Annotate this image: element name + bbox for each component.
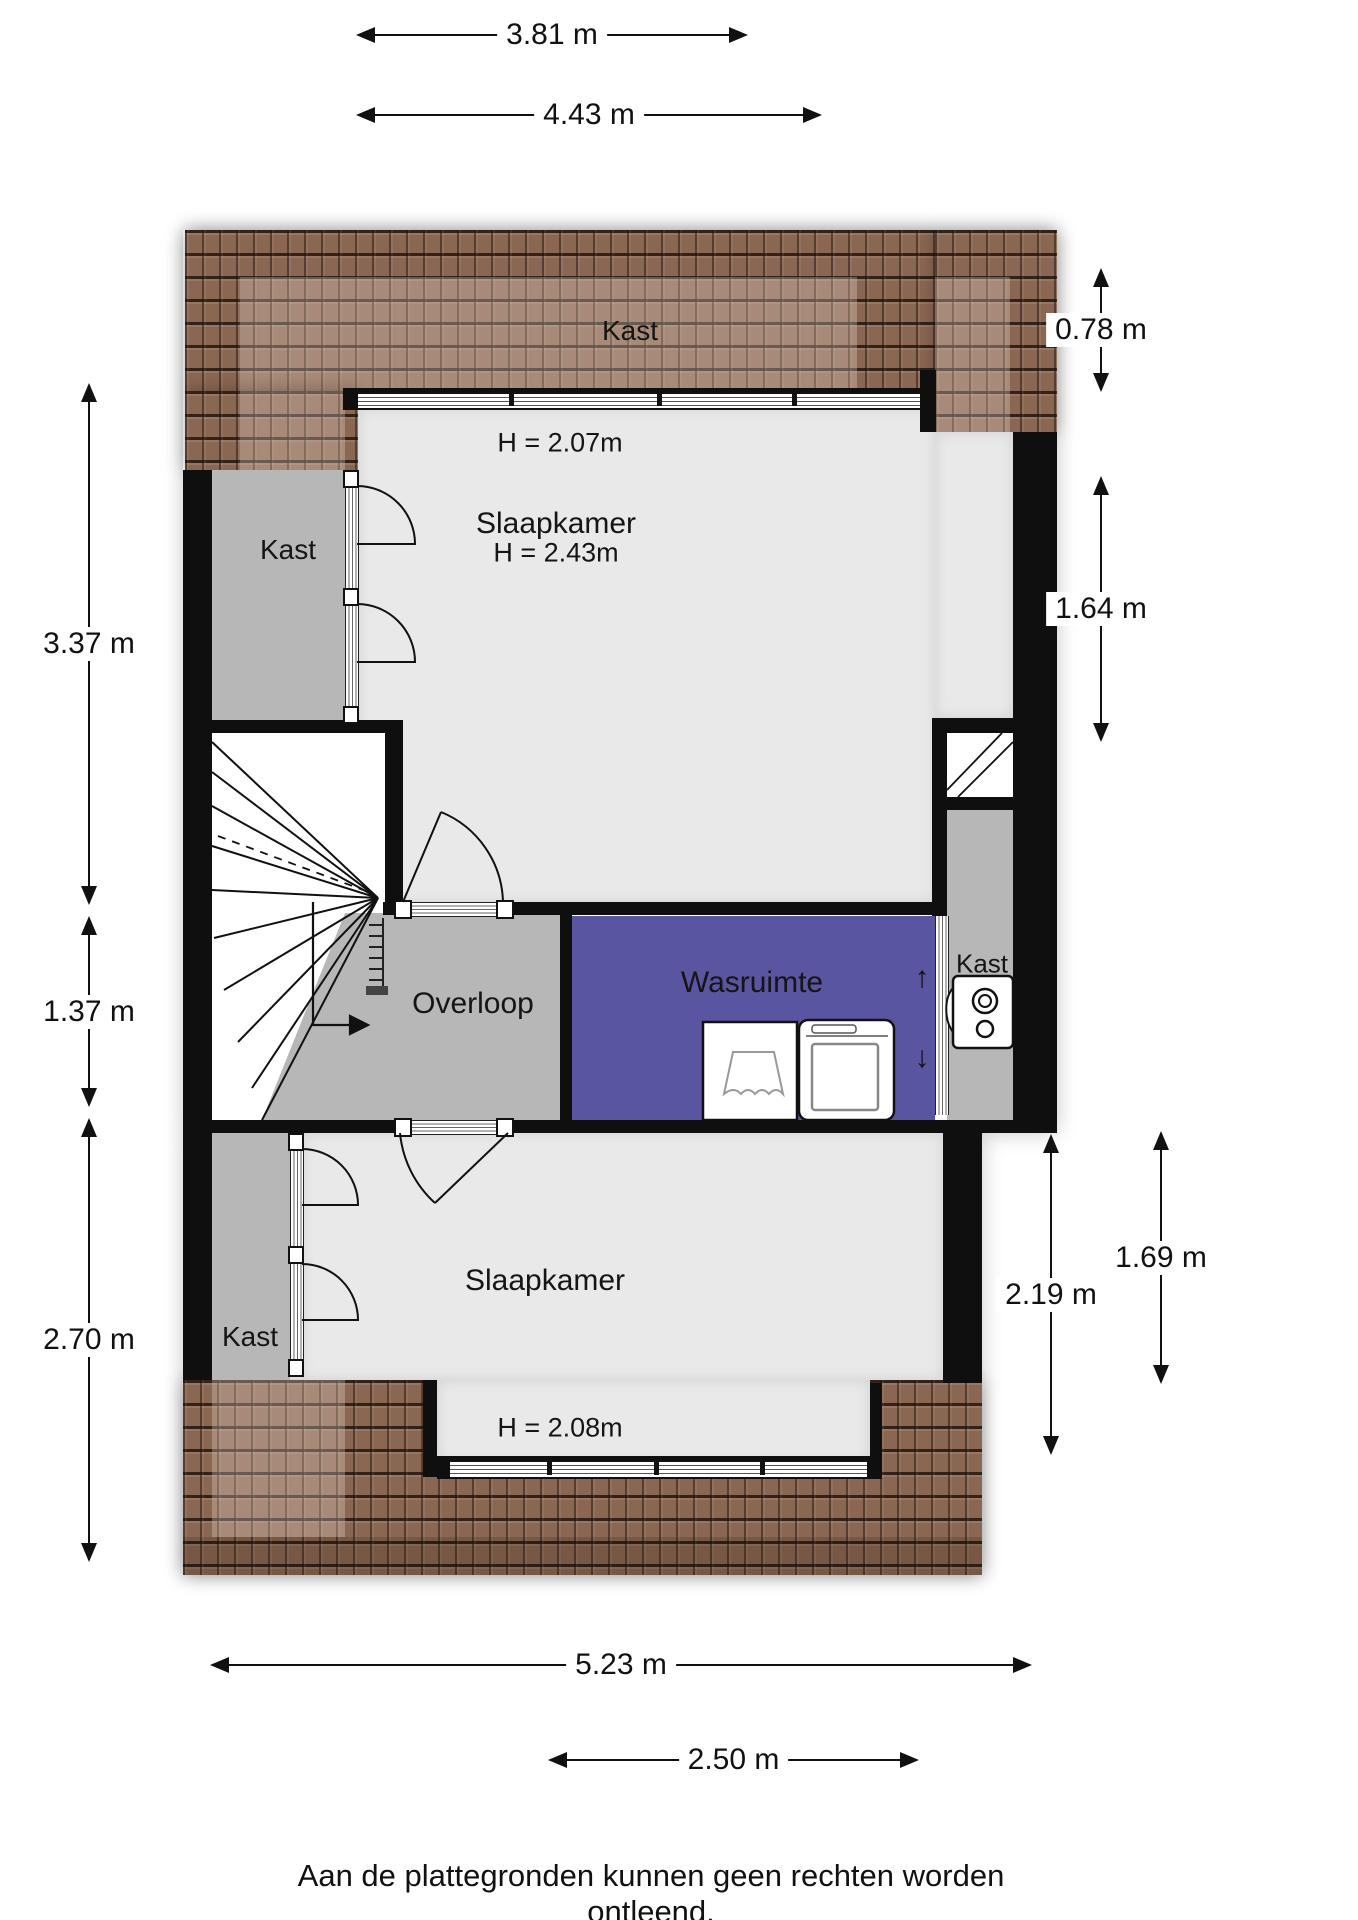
dimension-right-1-64: 1.64 m (1100, 478, 1102, 740)
slide-arrow-down: ↓ (915, 1041, 930, 1075)
ventilation-unit-icon (946, 976, 1013, 1048)
skylight-icon (947, 733, 1013, 797)
dimension-bottom-2-50: 2.50 m (550, 1759, 917, 1761)
height-label-top: H = 2.07m (497, 428, 622, 459)
dimension-right-0-78: 0.78 m (1100, 270, 1102, 390)
room-label-wasruimte: Wasruimte (681, 966, 823, 1000)
dimension-left-3-37: 3.37 m (88, 385, 90, 903)
room-label-slaapkamer-bottom: Slaapkamer (465, 1264, 625, 1298)
dimension-top-3-81: 3.81 m (358, 34, 746, 36)
room-label-kast-left: Kast (260, 534, 316, 566)
room-label-kast-right: Kast (956, 949, 1008, 980)
height-label-slaapkamer-top: H = 2.43m (493, 538, 618, 569)
height-label-slaapkamer-bottom: H = 2.08m (497, 1413, 622, 1444)
room-label-kast-bottom: Kast (222, 1321, 278, 1353)
dimension-right-1-69: 1.69 m (1160, 1133, 1162, 1382)
stairs-railing (366, 918, 388, 995)
room-label-kast-top: Kast (602, 315, 658, 347)
plan-linework (0, 0, 1358, 1920)
dimension-left-2-70: 2.70 m (88, 1120, 90, 1560)
stairs-icon (212, 742, 378, 1120)
disclaimer-text: Aan de plattegronden kunnen geen rechten… (239, 1858, 1063, 1920)
dimension-bottom-5-23: 5.23 m (212, 1664, 1030, 1666)
room-label-overloop: Overloop (412, 987, 534, 1021)
washing-machine-icon (703, 1022, 797, 1120)
slide-arrow-up: ↑ (915, 961, 930, 995)
room-label-slaapkamer-top: Slaapkamer (476, 507, 636, 541)
dimension-top-4-43: 4.43 m (358, 114, 820, 116)
dimension-right-2-19: 2.19 m (1050, 1136, 1052, 1453)
floorplan-page: ↑ ↓ Kast H = 2.07m Slaapkamer H = 2.43m … (0, 0, 1358, 1920)
dimension-left-1-37: 1.37 m (88, 918, 90, 1105)
door-arc-icon (302, 486, 508, 1320)
dryer-icon (799, 1020, 894, 1120)
